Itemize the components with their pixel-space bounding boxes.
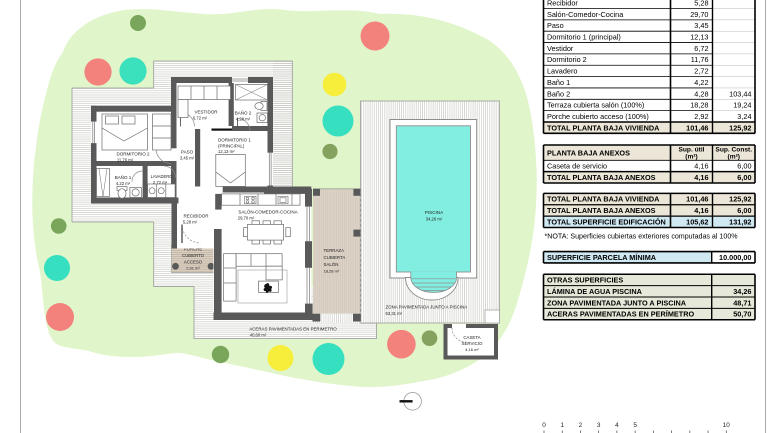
svg-text:6,00: 6,00 <box>737 173 751 182</box>
svg-text:Vestidor: Vestidor <box>547 44 574 53</box>
svg-text:DORMITORIO 1: DORMITORIO 1 <box>218 138 251 143</box>
svg-text:34,26 m²: 34,26 m² <box>426 217 443 222</box>
svg-text:Caseta de servicio: Caseta de servicio <box>547 162 607 171</box>
svg-text:3,45: 3,45 <box>694 21 708 30</box>
svg-text:5,28 m²: 5,28 m² <box>183 220 198 225</box>
svg-text:6,72 m²: 6,72 m² <box>193 116 208 121</box>
svg-text:6,72: 6,72 <box>694 44 708 53</box>
svg-text:TOTAL PLANTA BAJA VIVIENDA: TOTAL PLANTA BAJA VIVIENDA <box>547 195 660 204</box>
svg-text:CUBIERTA: CUBIERTA <box>324 255 346 260</box>
svg-text:Salón-Comedor-Cocina: Salón-Comedor-Cocina <box>547 10 624 19</box>
svg-text:29,70: 29,70 <box>690 10 708 19</box>
svg-text:Recibidor: Recibidor <box>547 0 578 7</box>
svg-text:2,72 m²: 2,72 m² <box>153 180 168 185</box>
svg-text:18,28 m²: 18,28 m² <box>324 269 340 274</box>
svg-text:5,28: 5,28 <box>694 0 708 7</box>
svg-text:Lavadero: Lavadero <box>547 67 577 76</box>
svg-text:4,16: 4,16 <box>694 162 708 171</box>
svg-text:(m²): (m²) <box>728 154 740 161</box>
svg-text:3,45 m²: 3,45 m² <box>180 156 195 161</box>
svg-text:4: 4 <box>615 422 619 429</box>
svg-text:5: 5 <box>633 422 637 429</box>
svg-text:ACCESO: ACCESO <box>184 260 203 265</box>
svg-text:ACERAS PAVIMENTADAS EN PERÍMET: ACERAS PAVIMENTADAS EN PERÍMETRO <box>547 310 694 319</box>
svg-text:4,16 m²: 4,16 m² <box>465 347 479 352</box>
svg-text:(m²): (m²) <box>685 154 697 161</box>
svg-text:3: 3 <box>597 422 601 429</box>
svg-text:OTRAS SUPERFICIES: OTRAS SUPERFICIES <box>547 276 623 285</box>
svg-text:PISCINA: PISCINA <box>425 210 444 215</box>
svg-text:4,28: 4,28 <box>694 89 708 98</box>
svg-text:Terraza cubierta salón (100%): Terraza cubierta salón (100%) <box>547 101 644 110</box>
svg-text:29,70 m²: 29,70 m² <box>238 216 255 221</box>
svg-text:ZONA PAVIMENTADA JUNTO A PISCI: ZONA PAVIMENTADA JUNTO A PISCINA <box>386 305 468 310</box>
svg-text:6,00: 6,00 <box>737 206 751 215</box>
svg-text:131,92: 131,92 <box>729 217 751 226</box>
svg-text:SUPERFICIE PARCELA MÍNIMA: SUPERFICIE PARCELA MÍNIMA <box>547 253 657 262</box>
svg-text:10.000,00: 10.000,00 <box>719 253 751 262</box>
svg-text:Baño 2: Baño 2 <box>547 89 570 98</box>
svg-text:2,92: 2,92 <box>694 112 708 121</box>
svg-text:SALÓN: SALÓN <box>324 262 339 267</box>
svg-text:11,76 m²: 11,76 m² <box>117 158 134 163</box>
svg-text:50,70: 50,70 <box>733 310 751 319</box>
svg-text:4,16: 4,16 <box>694 206 708 215</box>
svg-text:18,28: 18,28 <box>690 101 708 110</box>
svg-text:101,46: 101,46 <box>686 123 708 132</box>
svg-text:4,22 m²: 4,22 m² <box>116 181 131 186</box>
svg-text:10: 10 <box>723 422 731 429</box>
svg-text:4,16: 4,16 <box>694 173 708 182</box>
svg-text:0: 0 <box>542 422 546 429</box>
svg-text:TOTAL PLANTA BAJA ANEXOS: TOTAL PLANTA BAJA ANEXOS <box>547 173 656 182</box>
svg-text:VESTIDOR: VESTIDOR <box>194 110 218 115</box>
svg-text:4,28 m²: 4,28 m² <box>236 117 251 122</box>
svg-text:Dormitorio 2: Dormitorio 2 <box>547 55 587 64</box>
svg-text:6,00: 6,00 <box>737 162 751 171</box>
svg-text:CASETA: CASETA <box>463 335 480 340</box>
svg-text:4,22: 4,22 <box>694 78 708 87</box>
svg-text:19,24: 19,24 <box>733 101 751 110</box>
svg-text:53,31 m²: 53,31 m² <box>386 311 403 316</box>
svg-text:125,92: 125,92 <box>729 123 751 132</box>
svg-text:34,26: 34,26 <box>733 287 751 296</box>
svg-text:SERVICIO: SERVICIO <box>462 341 483 346</box>
svg-text:Porche cubierto acceso (100%): Porche cubierto acceso (100%) <box>547 112 649 121</box>
svg-text:LAVADERO: LAVADERO <box>151 174 173 179</box>
svg-text:CUBIERTO: CUBIERTO <box>182 253 205 258</box>
svg-text:(PRINCIPAL): (PRINCIPAL) <box>218 144 245 149</box>
svg-text:*NOTA: Superficies cubiertas e: *NOTA: Superficies cubiertas exteriores … <box>545 233 739 241</box>
svg-text:101,46: 101,46 <box>686 195 708 204</box>
svg-text:LÁMINA DE AGUA PISCINA: LÁMINA DE AGUA PISCINA <box>547 287 643 296</box>
svg-text:2,72: 2,72 <box>694 67 708 76</box>
svg-text:105,62: 105,62 <box>686 217 708 226</box>
svg-text:Dormitorio 1 (principal): Dormitorio 1 (principal) <box>547 33 621 42</box>
svg-text:40,60 m²: 40,60 m² <box>250 333 267 338</box>
svg-text:PLANTA BAJA ANEXOS: PLANTA BAJA ANEXOS <box>547 149 630 158</box>
svg-text:2,91 m²: 2,91 m² <box>186 266 200 271</box>
svg-text:ACERAS PAVIMENTADAS EN PERIMET: ACERAS PAVIMENTADAS EN PERIMETRO <box>249 327 337 332</box>
svg-text:TOTAL PLANTA BAJA VIVIENDA: TOTAL PLANTA BAJA VIVIENDA <box>547 123 660 132</box>
svg-text:TOTAL PLANTA BAJA ANEXOS: TOTAL PLANTA BAJA ANEXOS <box>547 206 656 215</box>
svg-text:2: 2 <box>579 422 583 429</box>
svg-text:TERRAZA: TERRAZA <box>324 248 345 253</box>
svg-text:1: 1 <box>560 422 564 429</box>
svg-text:Baño 1: Baño 1 <box>547 78 570 87</box>
svg-text:48,71: 48,71 <box>733 298 751 307</box>
svg-text:11,76: 11,76 <box>691 55 709 64</box>
svg-text:12,13 m²: 12,13 m² <box>218 149 235 154</box>
svg-text:Paso: Paso <box>547 21 564 30</box>
svg-text:BAÑO 2: BAÑO 2 <box>235 110 252 116</box>
svg-text:125,92: 125,92 <box>729 195 751 204</box>
svg-text:12,13: 12,13 <box>690 33 708 42</box>
svg-text:103,44: 103,44 <box>729 89 751 98</box>
svg-text:RECIBIDOR: RECIBIDOR <box>183 214 209 219</box>
svg-text:3,24: 3,24 <box>737 112 751 121</box>
svg-text:DORMITORIO 2: DORMITORIO 2 <box>117 152 150 157</box>
svg-text:BAÑO 1: BAÑO 1 <box>115 174 132 180</box>
svg-text:TOTAL SUPERFICIE EDIFICACIÓN: TOTAL SUPERFICIE EDIFICACIÓN <box>547 217 666 226</box>
svg-text:PASO: PASO <box>181 150 194 155</box>
svg-text:ZONA PAVIMENTADA JUNTO A PISCI: ZONA PAVIMENTADA JUNTO A PISCINA <box>547 298 687 307</box>
svg-text:SALÓN-COMEDOR-COCINA: SALÓN-COMEDOR-COCINA <box>238 209 297 215</box>
